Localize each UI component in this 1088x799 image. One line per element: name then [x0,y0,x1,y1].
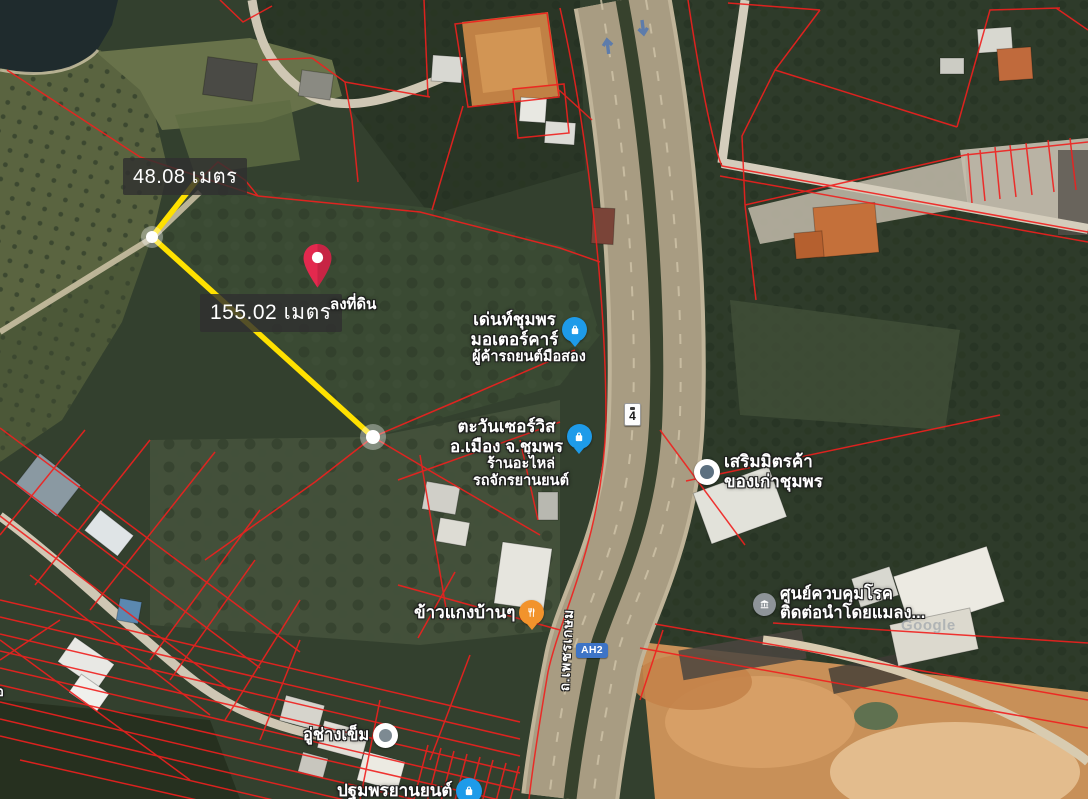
shopping-bag-icon[interactable] [567,424,592,449]
generic-place-icon[interactable] [373,723,398,748]
restaurant-icon[interactable] [519,600,544,625]
government-icon[interactable] [753,593,776,616]
route-4-shield: 4 [624,403,641,426]
place-name: ข้าวแกงบ้านๆ [414,603,515,623]
land-pin[interactable] [302,243,333,294]
place-name: ปฐมพรยานยนต์ [337,781,452,799]
shopping-bag-icon[interactable] [456,778,482,799]
place-subtitle: ผู้ค้ารถยนต์มือสอง [472,349,586,366]
road-name-label: ถ.เพชรเกษม [553,608,579,691]
place-label-pathomporn[interactable]: ปฐมพรยานยนต์ [337,778,482,799]
place-label-serm-mit[interactable]: เสริมมิตรค้า ของเก่าชุมพร [694,452,823,491]
place-label-tawan-service[interactable]: ตะวันเซอร์วิส อ.เมือง จ.ชุมพร ร้านอะไหล่… [440,417,602,490]
measurement-label-48m: 48.08 เมตร [123,158,247,195]
place-name: เด่นท์ชุมพร มอเตอร์คาร์ [471,310,559,349]
place-label-dent-chumphon[interactable]: เด่นท์ชุมพร มอเตอร์คาร์ ผู้ค้ารถยนต์มือส… [448,310,610,366]
measurement-label-155m: 155.02 เมตร [200,294,342,332]
shopping-bag-icon[interactable] [562,317,587,342]
google-watermark: Google [901,617,956,634]
route-number: 4 [629,410,636,422]
place-name: อู่ช่างเข็ม [303,726,369,745]
place-subtitle: ร้านอะไหล่ รถจักรยานยนต์ [473,456,569,490]
place-name: ตะวันเซอร์วิส อ.เมือง จ.ชุมพร [450,417,563,456]
place-label-khao-kaeng[interactable]: ข้าวแกงบ้านๆ [414,600,544,625]
route-ah2-shield: AH2 [576,643,608,658]
measure-endpoint [146,231,158,243]
place-label-u-chang-khem[interactable]: อู่ช่างเข็ม [303,723,398,748]
map-terrain [0,0,1088,799]
satellite-map-canvas[interactable]: 48.08 เมตร 155.02 เมตร ลงที่ดิน เด่นท์ชุ… [0,0,1088,799]
generic-place-icon[interactable] [694,459,720,485]
edge-place-label: อ [0,684,4,699]
map-pin-icon [302,243,333,289]
place-label-disease-control[interactable]: ศูนย์ควบคุมโรค ติดต่อนำโดยแมลง... [753,585,925,623]
measure-endpoint [366,430,380,444]
pin-label: ลงที่ดิน [330,296,376,314]
place-name: เสริมมิตรค้า ของเก่าชุมพร [724,452,823,491]
